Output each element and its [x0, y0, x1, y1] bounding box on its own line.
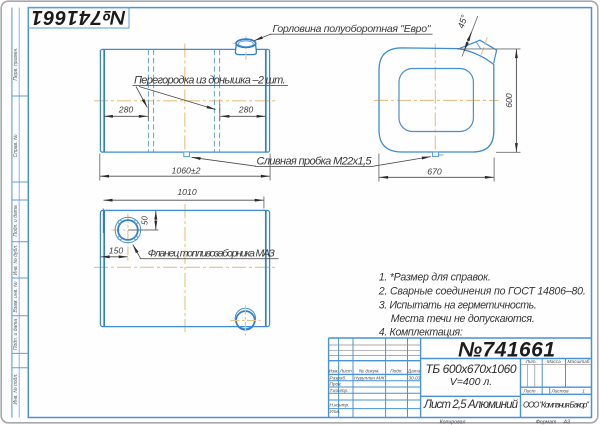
svg-text:Перегородка из донышка –2 шт.: Перегородка из донышка –2 шт. — [134, 74, 286, 86]
svg-text:Подп. и дата: Подп. и дата — [13, 205, 19, 237]
svg-text:А3: А3 — [563, 419, 570, 425]
svg-text:Утв.: Утв. — [330, 409, 341, 414]
svg-text:Разраб.: Разраб. — [330, 375, 347, 380]
svg-text:Лист: Лист — [339, 369, 352, 374]
svg-text:280: 280 — [118, 104, 134, 114]
svg-text:30.03: 30.03 — [409, 375, 421, 380]
svg-text:Пров.: Пров. — [330, 382, 342, 387]
svg-text:600: 600 — [504, 93, 514, 108]
svg-text:Изм.: Изм. — [329, 369, 339, 374]
svg-text:Формат: Формат — [536, 419, 557, 425]
svg-text:Места течи не допускаются.: Места течи не допускаются. — [391, 313, 535, 325]
svg-text:Лист 2,5 Алюминий: Лист 2,5 Алюминий — [423, 399, 519, 411]
svg-text:280: 280 — [238, 104, 254, 114]
svg-text:2. Сварные соединения по ГОСТ: 2. Сварные соединения по ГОСТ 14806–80. — [378, 285, 586, 297]
svg-text:Масштаб: Масштаб — [568, 359, 590, 364]
svg-text:№ докум.: № докум. — [359, 369, 380, 374]
svg-text:150: 150 — [109, 246, 124, 256]
svg-text:4. Комплектация:: 4. Комплектация: — [379, 326, 463, 338]
svg-text:Фланец топливозаборника МАЗ: Фланец топливозаборника МАЗ — [148, 247, 276, 259]
svg-text:Копировал: Копировал — [440, 419, 466, 425]
svg-text:670: 670 — [427, 167, 442, 177]
svg-text:Инв. № подл.: Инв. № подл. — [13, 373, 19, 404]
svg-text:1: 1 — [582, 389, 585, 394]
svg-text:Перв. примен.: Перв. примен. — [13, 47, 19, 80]
svg-text:Взам. инв. №: Взам. инв. № — [13, 281, 19, 313]
svg-text:Справ. №: Справ. № — [13, 134, 19, 157]
svg-text:3. Испытать на герметичность.: 3. Испытать на герметичность. — [379, 299, 537, 311]
svg-text:Инв. № дубл.: Инв. № дубл. — [13, 245, 19, 276]
svg-text:№741661: №741661 — [458, 339, 555, 362]
svg-text:Сливная пробка М22х1,5: Сливная пробка М22х1,5 — [257, 155, 373, 167]
svg-text:ТБ 600х670х1060: ТБ 600х670х1060 — [426, 362, 517, 376]
svg-text:50: 50 — [141, 216, 150, 225]
svg-text:V=400 л.: V=400 л. — [450, 376, 492, 388]
svg-text:Нуруллин МЖ: Нуруллин МЖ — [354, 375, 385, 380]
svg-text:Н.контр.: Н.контр. — [330, 403, 350, 408]
svg-text:1010: 1010 — [177, 187, 196, 197]
svg-text:№741661: №741661 — [32, 6, 126, 28]
svg-text:Подп. и дата: Подп. и дата — [13, 319, 19, 351]
svg-text:ООО "Компания Бакор": ООО "Компания Бакор" — [523, 401, 590, 410]
svg-text:Горловина полуоборотная "Евро": Горловина полуоборотная "Евро" — [273, 23, 432, 35]
svg-text:Лист: Лист — [522, 389, 535, 394]
svg-text:Подп.: Подп. — [390, 369, 402, 374]
svg-text:Листов: Листов — [550, 389, 569, 394]
svg-text:Т.контр.: Т.контр. — [330, 388, 349, 393]
svg-text:Дата: Дата — [407, 369, 421, 374]
svg-text:1. *Размер для справок.: 1. *Размер для справок. — [379, 271, 491, 283]
svg-text:Масса: Масса — [547, 359, 561, 364]
svg-text:1060±2: 1060±2 — [172, 166, 201, 176]
svg-text:Лит.: Лит. — [525, 359, 537, 364]
